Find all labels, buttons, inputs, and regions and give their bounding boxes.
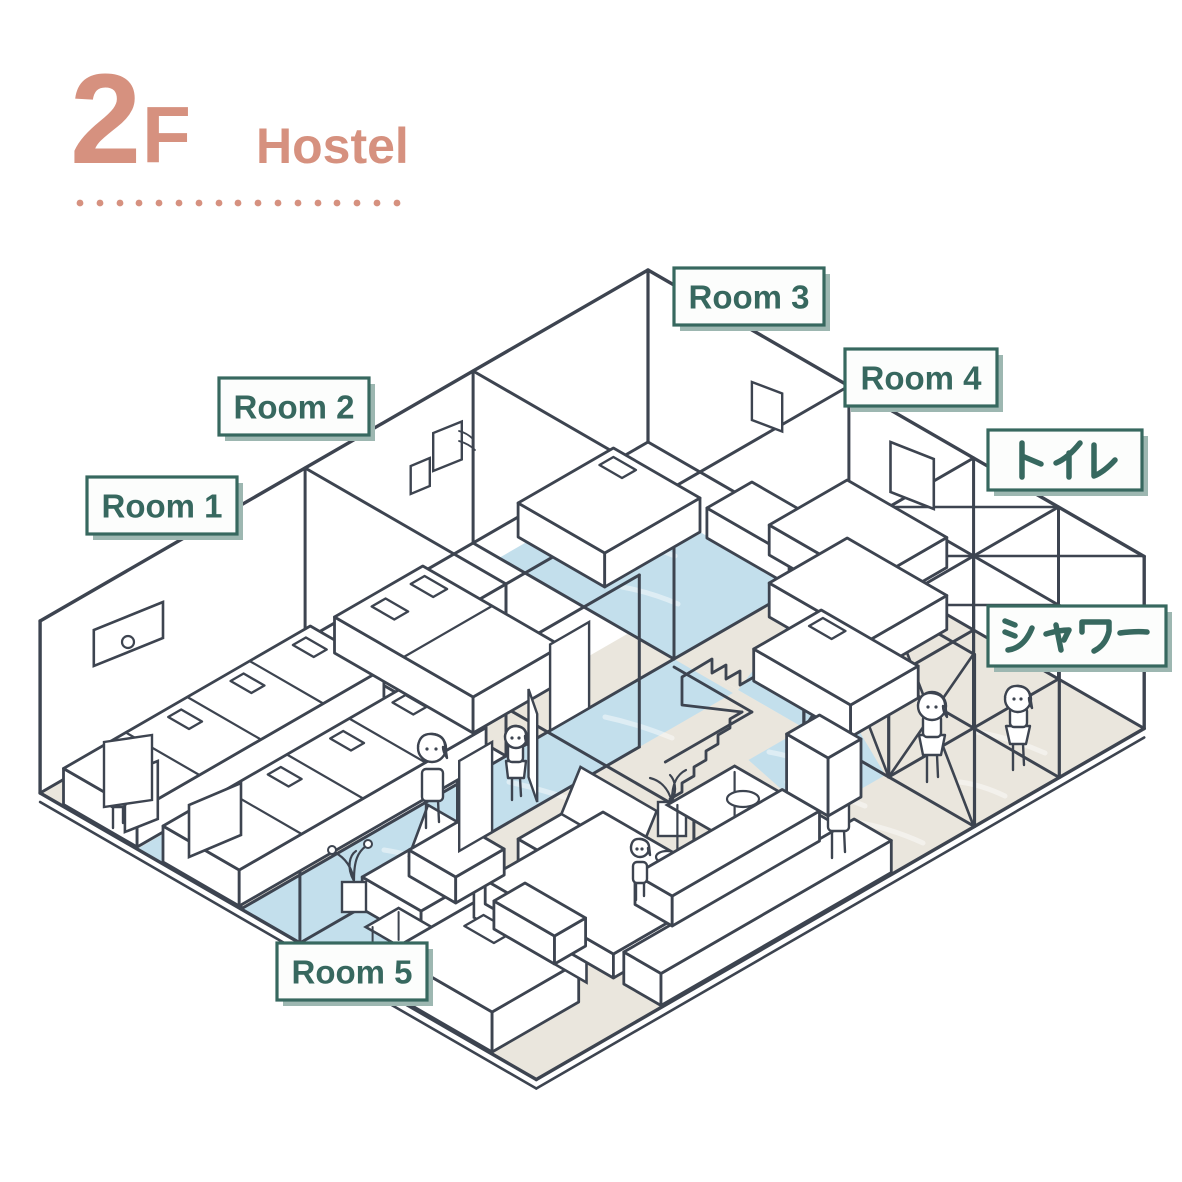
svg-text:Room 1: Room 1	[101, 487, 222, 524]
svg-text:Room 5: Room 5	[291, 953, 412, 990]
svg-text:F: F	[142, 90, 191, 179]
svg-text:Room 4: Room 4	[860, 359, 982, 396]
svg-text:Room 3: Room 3	[688, 278, 809, 315]
svg-text:2: 2	[70, 48, 141, 191]
svg-text:Room 2: Room 2	[233, 388, 354, 425]
svg-text:Hostel: Hostel	[256, 118, 409, 174]
